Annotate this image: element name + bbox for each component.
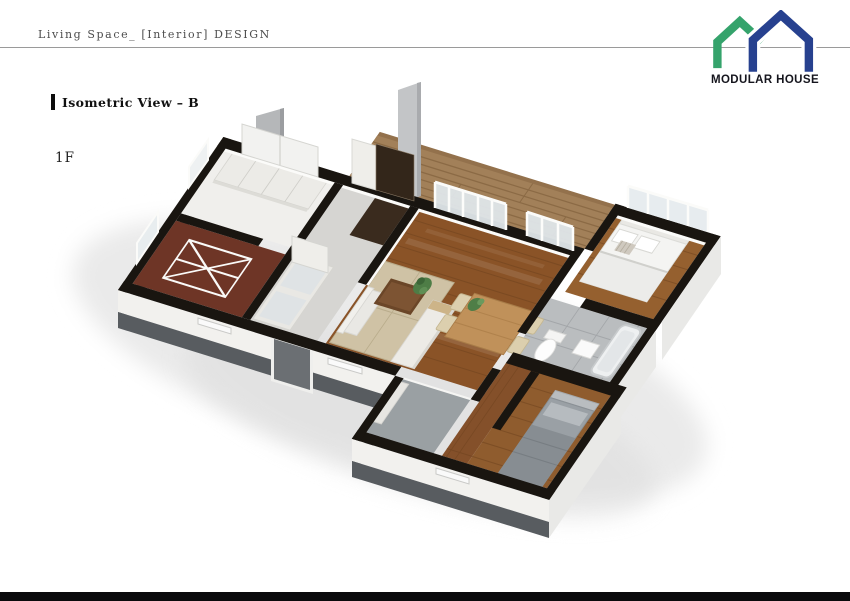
- floorplan-isometric: [0, 0, 850, 601]
- floorplan-container: [0, 0, 850, 601]
- presentation-slide: Living Space_ [Interior] DESIGN MODULAR …: [0, 0, 850, 601]
- hall-white-panel: [352, 139, 376, 190]
- footer-accent-bar: [0, 592, 850, 601]
